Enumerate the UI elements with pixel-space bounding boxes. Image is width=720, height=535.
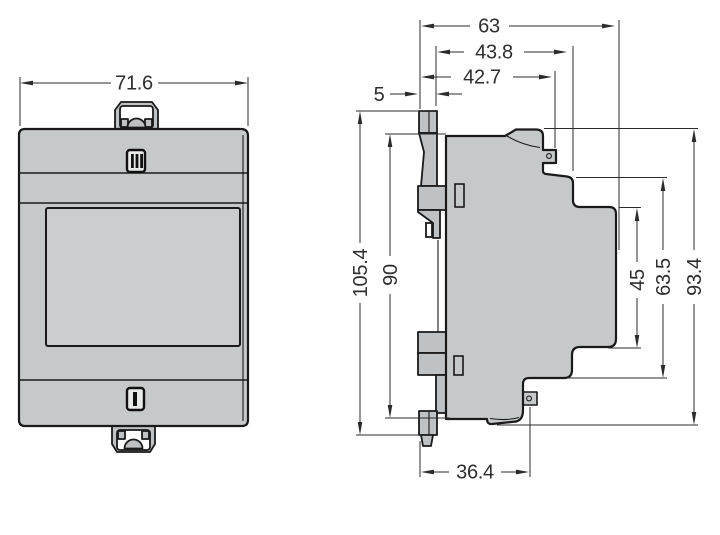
dim-upper-body-depth-label: 43.8 <box>475 42 513 64</box>
dim-latch-depth-label: 42.7 <box>463 67 501 89</box>
front-display-panel <box>46 208 240 346</box>
dim-front-section-height-label: 45 <box>627 269 649 291</box>
front-top-port-icon <box>127 150 145 172</box>
dimension-drawing: 71.6 <box>0 0 720 535</box>
dim-rear-tab-depth-label: 5 <box>374 84 385 106</box>
dim-overall-height-label: 93.4 <box>684 258 706 296</box>
dim-rear-tab-depth: 5 <box>374 84 462 106</box>
rear-lower-strip <box>436 375 446 413</box>
bottom-clip-block-right <box>142 431 149 439</box>
bottom-clip-block-left <box>118 431 125 439</box>
rear-upper-block <box>418 186 446 210</box>
rear-bottom-tab <box>419 411 437 435</box>
dim-mid-section-height-label: 63.5 <box>653 258 675 296</box>
dim-body-height-label: 90 <box>380 264 402 286</box>
side-body-profile <box>446 130 616 425</box>
dim-overall-depth-label: 63 <box>478 16 500 38</box>
front-bottom-clip <box>112 426 155 452</box>
rear-top-wedge <box>419 133 437 186</box>
dim-base-depth-label: 36.4 <box>456 462 494 484</box>
rear-bottom-foot <box>421 435 433 446</box>
dim-front-width-label: 71.6 <box>115 73 153 95</box>
rear-lower-block-a <box>418 332 446 353</box>
side-view: 63 43.8 42.7 5 <box>350 16 706 484</box>
front-top-clip <box>115 102 158 130</box>
front-view: 71.6 <box>19 73 248 453</box>
rear-lower-block-b <box>418 353 446 375</box>
rear-top-tab <box>419 111 437 133</box>
side-bottom-latch <box>523 392 537 405</box>
side-rear-clip-assembly <box>418 111 446 446</box>
rear-notch-slot <box>426 223 432 237</box>
front-bottom-port-icon <box>127 388 144 410</box>
dim-total-height-label: 105.4 <box>350 249 372 298</box>
technical-drawing-page: 71.6 <box>0 0 720 535</box>
